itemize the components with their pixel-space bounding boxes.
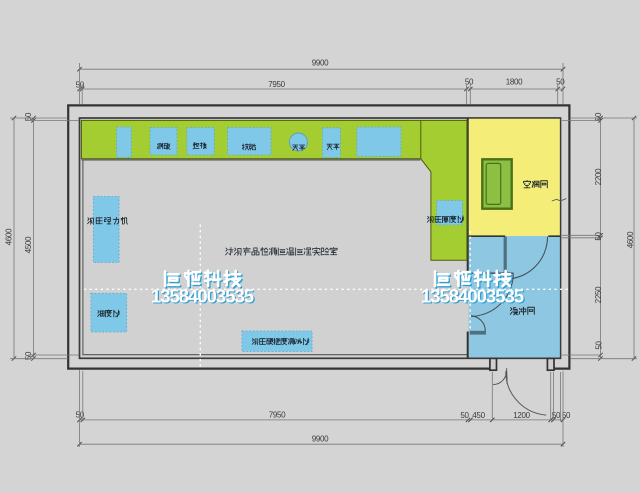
svg-text:50: 50 — [594, 112, 603, 121]
svg-text:1800: 1800 — [506, 78, 523, 87]
svg-text:50: 50 — [594, 232, 603, 241]
svg-text:9900: 9900 — [312, 58, 329, 67]
svg-text:4600: 4600 — [5, 228, 14, 245]
svg-text:1200: 1200 — [513, 411, 530, 420]
svg-text:50: 50 — [76, 410, 85, 419]
svg-text:50: 50 — [24, 112, 33, 121]
svg-text:7950: 7950 — [268, 80, 285, 89]
svg-text:50: 50 — [595, 341, 604, 350]
svg-text:450: 450 — [472, 411, 485, 420]
svg-text:2250: 2250 — [594, 286, 603, 303]
svg-text:50: 50 — [460, 411, 469, 420]
svg-text:50: 50 — [76, 81, 85, 90]
svg-text:7950: 7950 — [269, 410, 286, 419]
svg-text:13584003535: 13584003535 — [151, 285, 254, 306]
svg-text:9900: 9900 — [312, 435, 329, 444]
svg-text:4500: 4500 — [24, 236, 33, 253]
svg-text:13584003535: 13584003535 — [421, 285, 524, 306]
svg-text:4600: 4600 — [626, 231, 635, 248]
svg-text:2200: 2200 — [594, 168, 603, 185]
